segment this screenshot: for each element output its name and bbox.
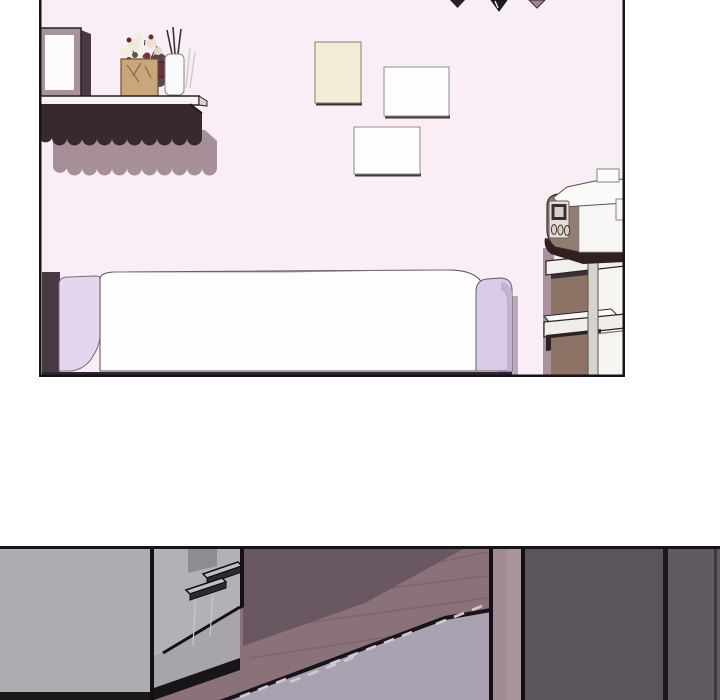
frame-photo [45, 35, 74, 90]
post-face-light [507, 549, 521, 700]
comic-panel-room-corner [0, 546, 720, 700]
diffuser-bottle [165, 54, 184, 95]
cabinet-right-edge [240, 549, 244, 609]
cart-post [588, 256, 598, 375]
white-wall-frame [384, 67, 449, 116]
cart-drawer-lower [598, 331, 625, 375]
wardrobe-seam [663, 549, 668, 700]
wardrobe-right-edge [714, 549, 717, 700]
bed-gap-dark [42, 272, 60, 375]
gray-counter [0, 549, 154, 700]
frame-cast-shadow [81, 30, 91, 97]
post-edge-line [521, 549, 525, 700]
post-edge-line [489, 549, 493, 700]
utility-cart [543, 248, 625, 377]
bed-blanket [100, 270, 484, 371]
door-post [489, 549, 525, 700]
counter-front [0, 549, 152, 694]
cream-wall-frame [315, 42, 361, 103]
dark-wardrobe [525, 549, 720, 700]
counter-edge-line [150, 549, 154, 700]
wardrobe-panel-left [525, 549, 663, 700]
wardrobe-panel-right [668, 549, 720, 700]
comic-panel-bedroom [39, 0, 625, 377]
device-screen-inner [555, 207, 564, 217]
panel-border [0, 546, 720, 549]
device-control-panel [549, 201, 570, 238]
device-top-tab [597, 169, 619, 182]
shelf-board [39, 96, 199, 105]
photo-frame [39, 28, 91, 98]
device-button [564, 226, 569, 236]
device-button [558, 225, 563, 235]
scalloped-valance [39, 104, 202, 146]
white-wall-frame [354, 127, 420, 174]
device-button [551, 225, 556, 235]
counter-base-line [0, 692, 152, 700]
bed [42, 270, 512, 375]
